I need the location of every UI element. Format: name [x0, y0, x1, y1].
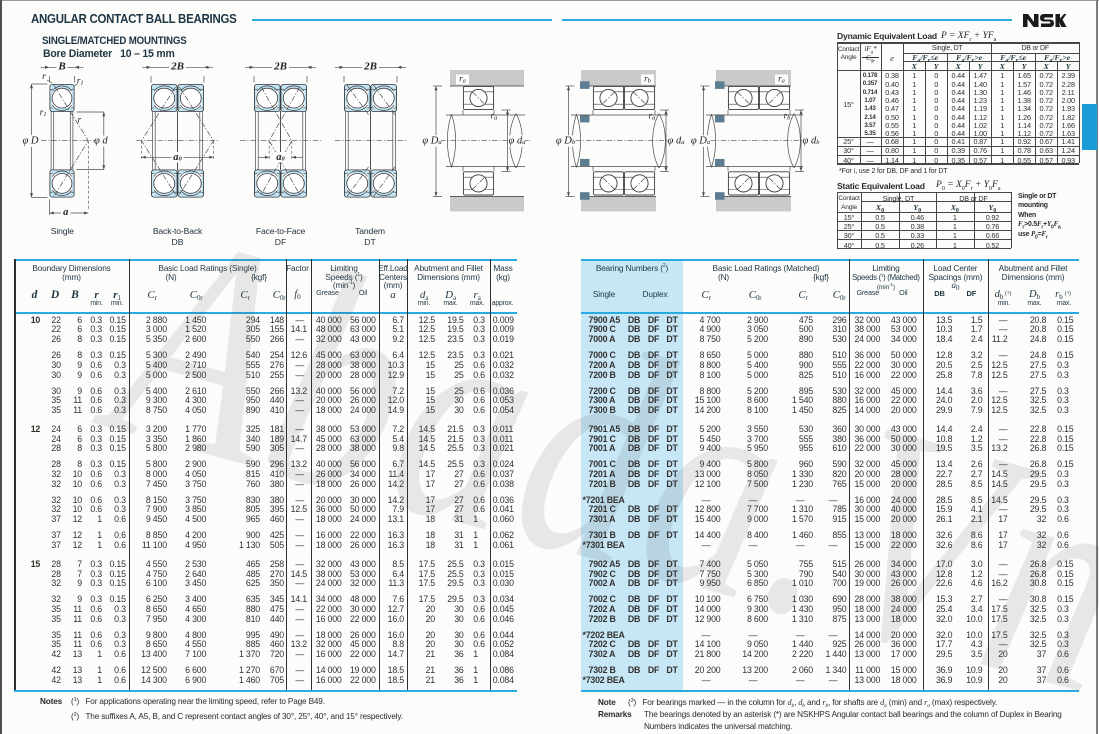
svg-text:ra: ra [491, 111, 498, 122]
svg-text:ra: ra [649, 111, 656, 122]
svg-text:B: B [57, 61, 65, 73]
svg-text:r1: r1 [77, 77, 84, 87]
svg-text:2B: 2B [363, 61, 377, 73]
svg-text:φ d: φ d [94, 136, 108, 147]
svg-text:2B: 2B [273, 61, 287, 73]
svg-text:r: r [77, 116, 81, 126]
svg-text:r1: r1 [40, 108, 47, 118]
svg-text:φ D: φ D [22, 136, 38, 147]
svg-text:2B: 2B [170, 61, 184, 73]
svg-text:r: r [42, 72, 46, 82]
svg-text:a: a [63, 207, 68, 218]
